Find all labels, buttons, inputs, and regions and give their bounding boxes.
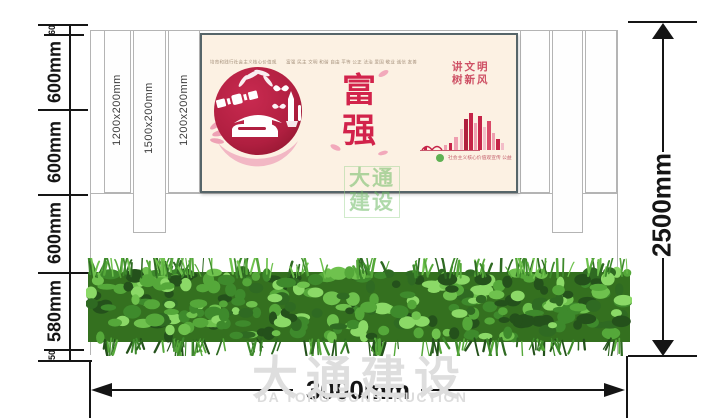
side-slogan-line-2: 树新风 — [452, 74, 490, 87]
stamp-line-1: 大通 — [345, 167, 399, 191]
column-right-2 — [552, 30, 583, 233]
arrow-down-icon — [652, 340, 674, 356]
column-right-3 — [585, 30, 617, 193]
arrow-up-icon — [652, 23, 674, 39]
left-tick-4 — [38, 194, 88, 196]
floral-accent-3 — [378, 150, 389, 156]
main-char-fu: 富 — [340, 73, 378, 109]
dim-right-total: 2500mm — [647, 153, 678, 257]
city-skyline-illustration — [420, 107, 506, 153]
green-badge-icon — [436, 154, 444, 162]
construction-drawing: 大通建设 DA TONG CONSTRUCTION 1200x200mm 150… — [0, 0, 720, 420]
poster-main-title: 富 强 — [340, 73, 378, 149]
dim-left-600-a: 600mm — [45, 41, 66, 103]
dim-left-580: 580mm — [45, 280, 66, 342]
poster-footer-note: 社会主义核心价值观宣传 公益 — [448, 154, 512, 161]
left-tick-7 — [38, 360, 92, 362]
column-size-label-2: 1500x200mm — [143, 82, 155, 154]
left-tick-3 — [38, 109, 88, 111]
dim-left-60: 60 — [47, 25, 57, 35]
right-dim-shaft-lower — [662, 258, 664, 342]
dim-left-600-c: 600mm — [45, 202, 66, 264]
column-size-label-1: 1200x200mm — [111, 74, 123, 146]
right-dim-shaft-upper — [662, 38, 664, 152]
main-char-qiang: 强 — [340, 113, 378, 149]
dim-left-600-b: 600mm — [45, 121, 66, 183]
poster-side-slogan: 讲文明 树新风 — [452, 61, 490, 87]
arrow-left-icon — [91, 383, 112, 397]
side-slogan-line-1: 讲文明 — [452, 61, 490, 74]
arrow-right-icon — [604, 383, 625, 397]
papercut-emblem-illustration — [208, 63, 308, 175]
stamp-line-2: 建设 — [345, 191, 399, 215]
column-right-1 — [520, 30, 550, 193]
hedge-plants — [86, 258, 632, 356]
column-size-label-3: 1200x200mm — [178, 74, 190, 146]
watermark-english: DA TONG CONSTRUCTION — [257, 389, 467, 405]
watermark-stamp: 大通 建设 — [344, 166, 400, 218]
bottom-dim-ext-right — [626, 356, 628, 418]
dim-left-50: 50 — [47, 350, 57, 360]
left-tick-5 — [38, 272, 88, 274]
floral-accent-1 — [377, 69, 389, 79]
left-tick-1 — [38, 24, 88, 26]
